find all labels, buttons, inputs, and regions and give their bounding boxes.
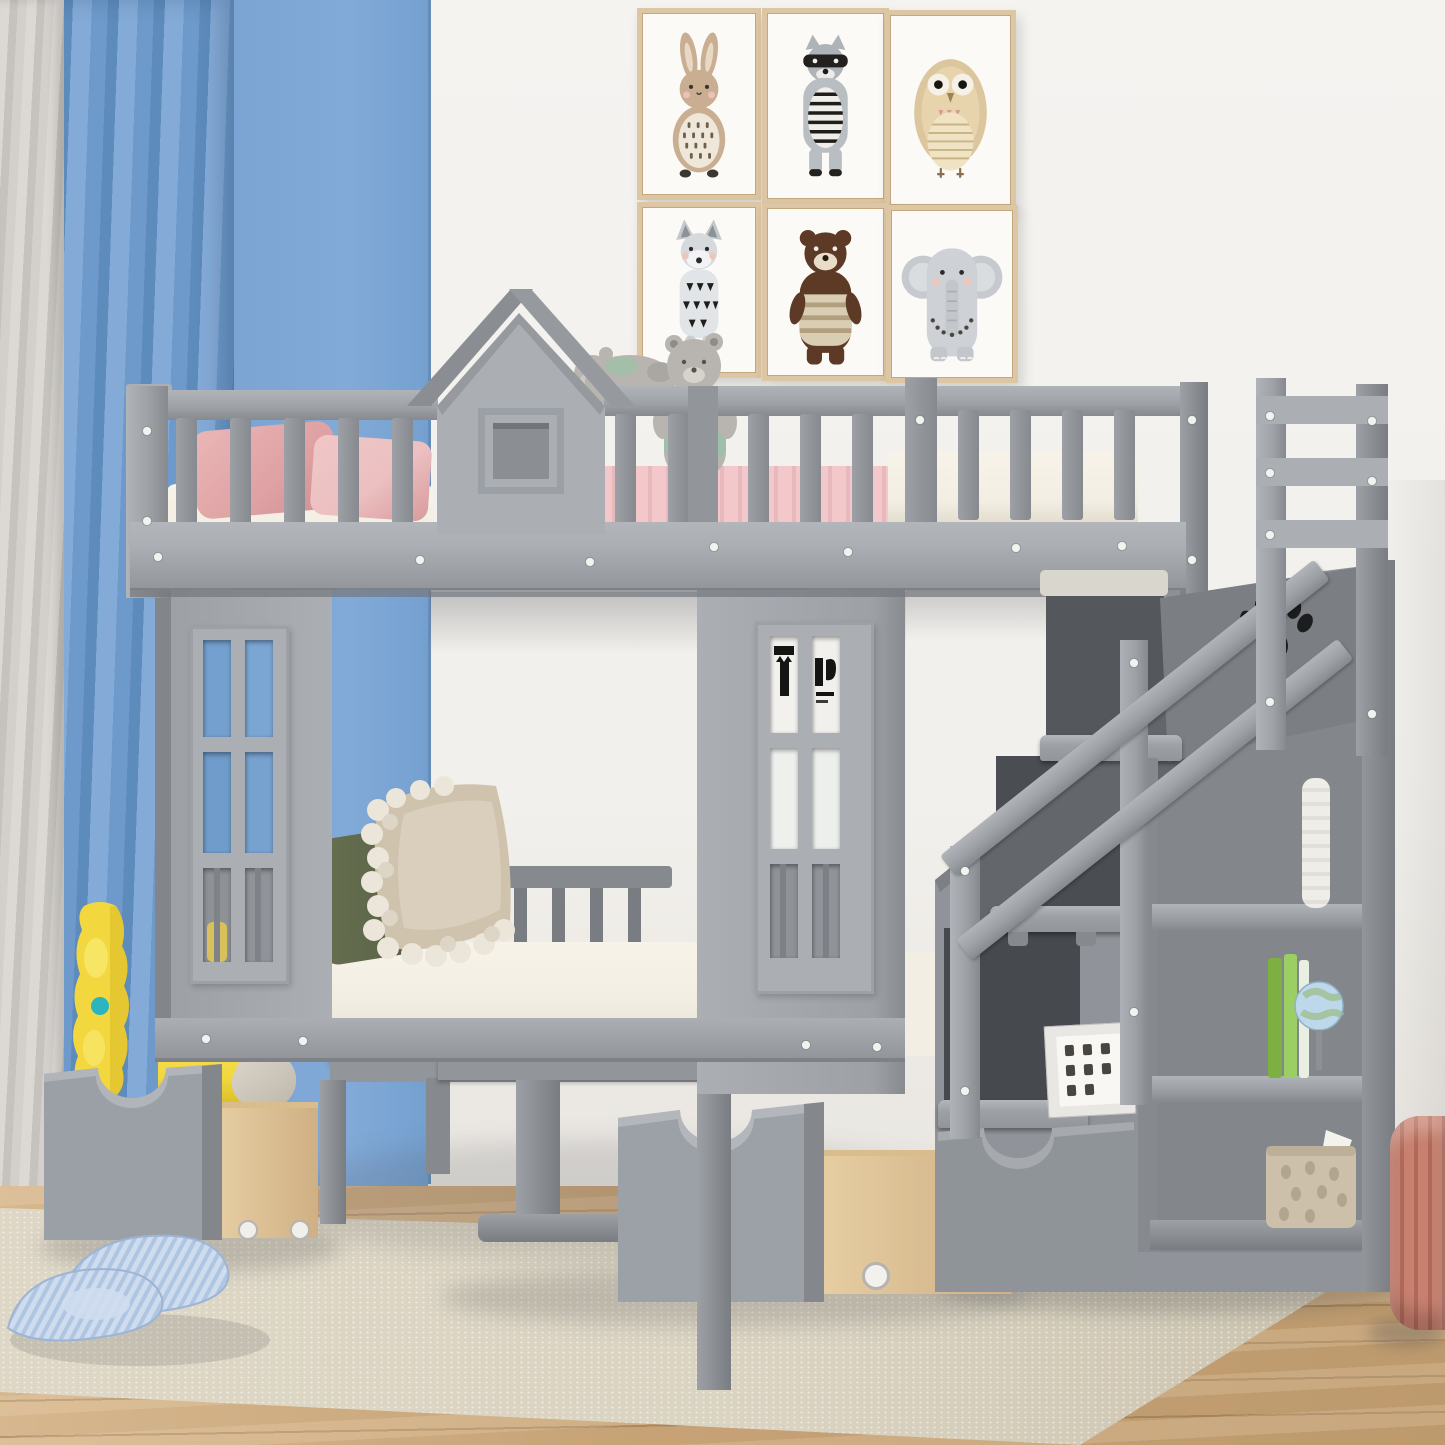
knitted-pouf <box>1390 1116 1445 1330</box>
room-photo <box>0 0 1445 1445</box>
plush-slippers <box>0 1200 340 1400</box>
